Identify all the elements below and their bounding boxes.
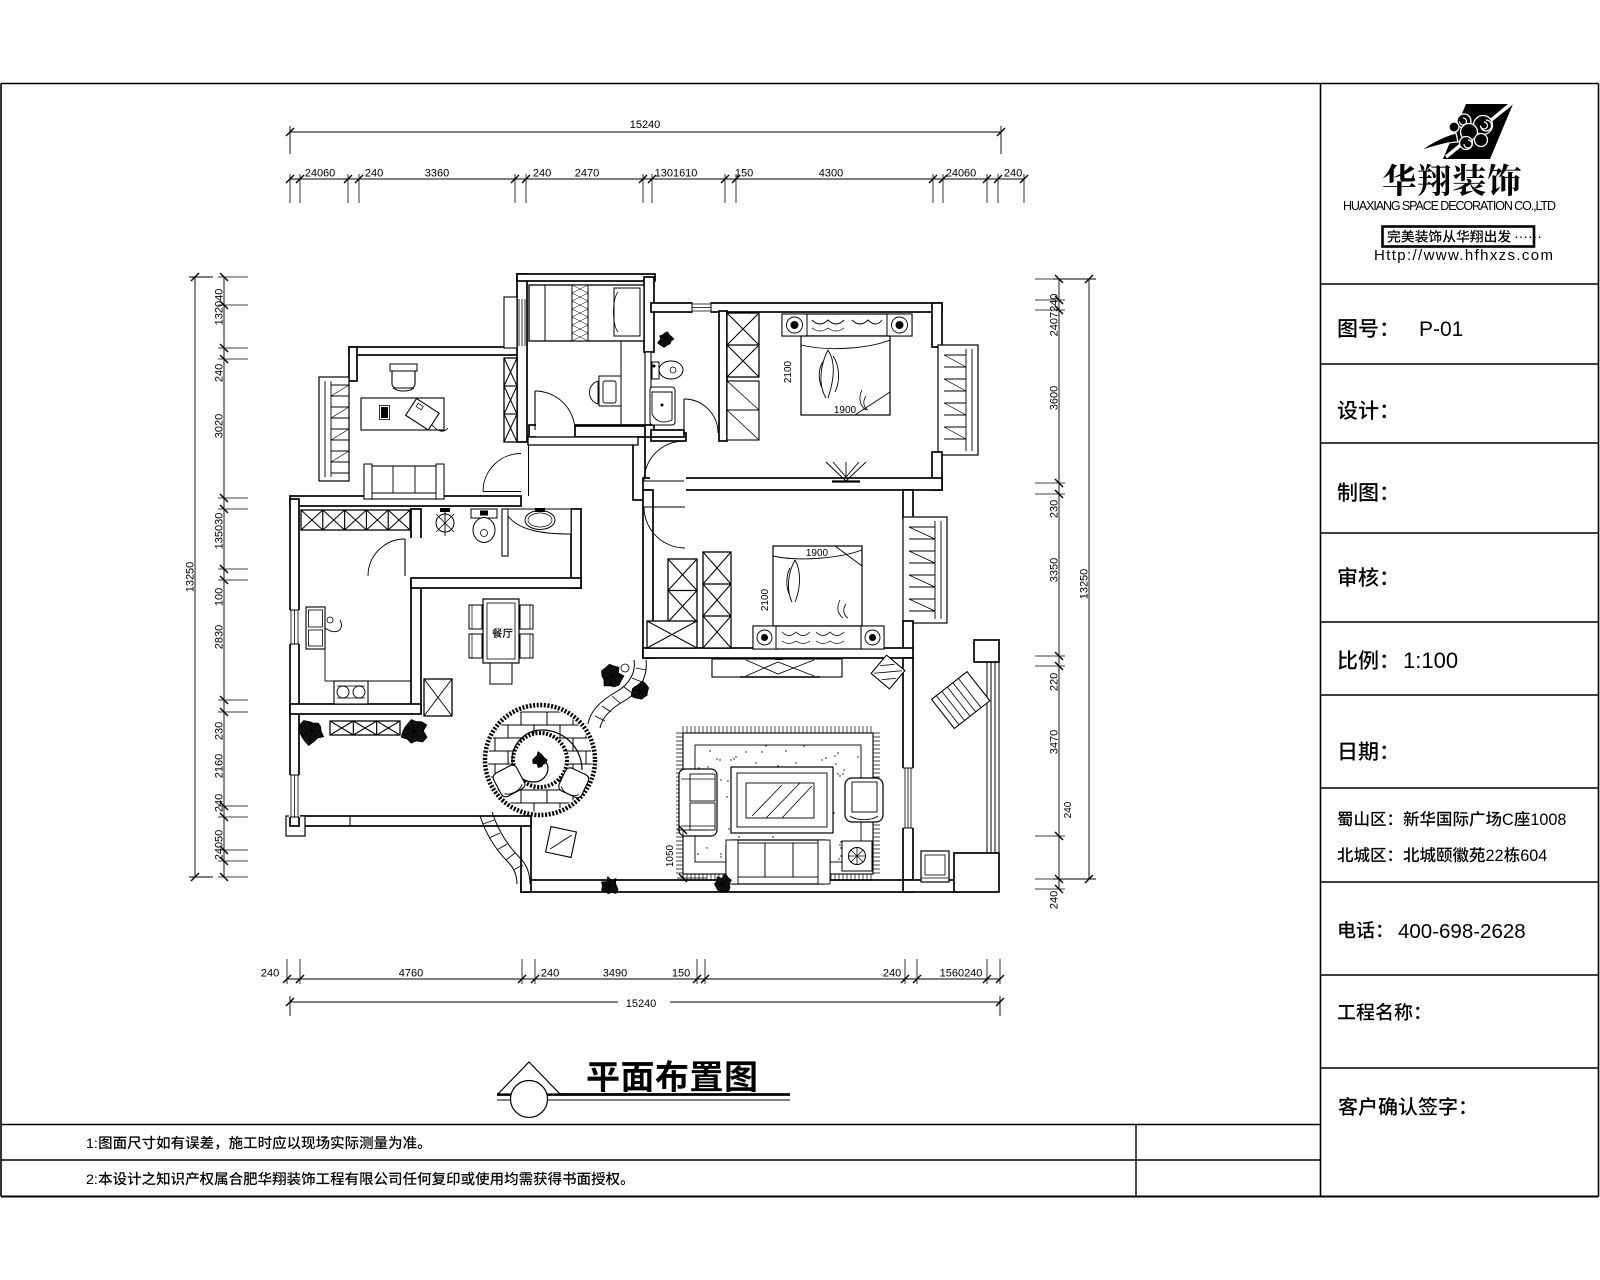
svg-text:135030: 135030	[214, 513, 226, 550]
svg-text:1:: 1:	[86, 1136, 98, 1152]
svg-text:2830: 2830	[214, 625, 226, 649]
svg-text:240: 240	[1063, 801, 1074, 818]
svg-text:1301610: 1301610	[655, 168, 698, 180]
svg-text:1:100: 1:100	[1403, 648, 1458, 673]
svg-text:240: 240	[533, 168, 551, 180]
svg-text:2100: 2100	[783, 360, 794, 383]
svg-text:13250: 13250	[185, 562, 197, 593]
svg-text:2100: 2100	[760, 588, 771, 611]
svg-text:3020: 3020	[214, 414, 226, 438]
svg-text:240: 240	[883, 968, 901, 980]
svg-text:24060: 24060	[946, 168, 977, 180]
svg-text:400-698-2628: 400-698-2628	[1398, 920, 1526, 943]
svg-text:2160: 2160	[214, 754, 226, 778]
svg-text:1560240: 1560240	[940, 968, 983, 980]
svg-text:1900: 1900	[834, 405, 857, 416]
svg-text:24050: 24050	[214, 830, 226, 861]
svg-text:240: 240	[541, 968, 559, 980]
svg-text:22: 22	[1486, 847, 1504, 865]
svg-text:3360: 3360	[425, 168, 449, 180]
svg-text:4300: 4300	[819, 168, 843, 180]
svg-text:230: 230	[1049, 500, 1061, 518]
svg-text:3470: 3470	[1049, 730, 1061, 754]
svg-text:604: 604	[1520, 847, 1547, 865]
svg-text:132040: 132040	[214, 289, 226, 326]
svg-text:P-01: P-01	[1419, 318, 1463, 341]
svg-text:Http://www.hfhxzs.com: Http://www.hfhxzs.com	[1374, 247, 1553, 264]
svg-text:······: ······	[1514, 228, 1542, 244]
svg-text:24060: 24060	[305, 168, 336, 180]
svg-text:240: 240	[365, 168, 383, 180]
svg-text:3490: 3490	[603, 968, 627, 980]
svg-text:1050: 1050	[665, 844, 676, 867]
svg-text:C: C	[1502, 811, 1514, 829]
svg-text:1008: 1008	[1530, 811, 1566, 829]
svg-text:HUAXIANG SPACE DECORATION CO.,: HUAXIANG SPACE DECORATION CO.,LTD	[1343, 199, 1556, 213]
svg-text:2:: 2:	[86, 1172, 98, 1188]
svg-text:230: 230	[214, 722, 226, 740]
svg-text:15240: 15240	[626, 998, 657, 1010]
svg-text:13250: 13250	[1079, 569, 1091, 600]
svg-text:3600: 3600	[1049, 386, 1061, 410]
svg-text:240: 240	[1004, 168, 1022, 180]
svg-text:240: 240	[214, 794, 226, 812]
svg-text:15240: 15240	[630, 119, 661, 131]
svg-text:220: 220	[1049, 673, 1061, 691]
svg-text:150: 150	[672, 968, 690, 980]
svg-text:240: 240	[214, 364, 226, 382]
svg-text:3350: 3350	[1049, 558, 1061, 582]
svg-text:240: 240	[261, 968, 279, 980]
svg-text:4760: 4760	[399, 968, 423, 980]
svg-text:150: 150	[735, 168, 753, 180]
svg-text:240: 240	[1049, 891, 1061, 909]
svg-text:1900: 1900	[806, 548, 829, 559]
svg-text:2407240: 2407240	[1049, 294, 1061, 337]
svg-text:2470: 2470	[575, 168, 599, 180]
svg-text:100: 100	[214, 588, 226, 606]
